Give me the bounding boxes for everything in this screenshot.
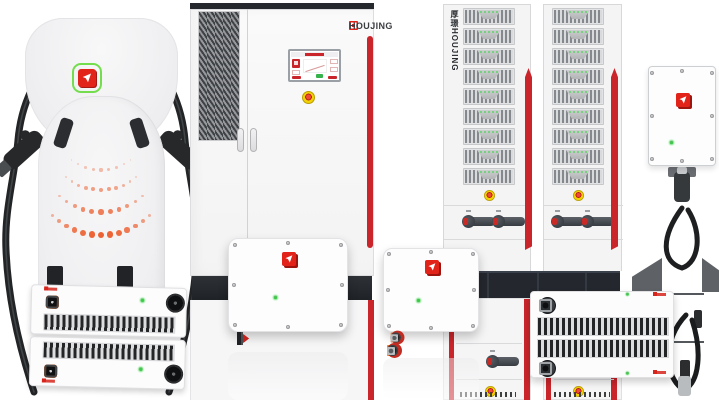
module-led: [577, 51, 579, 53]
module-led: [569, 31, 571, 33]
rotary-switch: [492, 215, 525, 228]
module-led: [484, 171, 486, 173]
charger-dot: [57, 219, 61, 223]
module-led: [573, 91, 575, 93]
black-connector: [46, 295, 59, 308]
charger-dot: [107, 231, 113, 237]
brand-logo-icon: [282, 252, 296, 266]
charger-dot: [80, 230, 86, 236]
module-led: [585, 11, 587, 13]
wallbox-front-view: [383, 248, 479, 332]
module-led: [496, 171, 498, 173]
module-led: [496, 31, 498, 33]
brand-logo-icon: [676, 93, 690, 107]
module-led: [484, 11, 486, 13]
screw: [387, 252, 391, 256]
rectifier-module-stack: [29, 284, 187, 392]
module-led: [496, 11, 498, 13]
power-module-slot: [552, 168, 604, 185]
screw: [339, 323, 343, 327]
charger-dot: [133, 224, 138, 229]
red-accent-stripe: [367, 36, 373, 248]
emergency-stop-button: [302, 91, 315, 104]
charger-dot: [125, 204, 129, 208]
module-rack-right: [543, 4, 622, 271]
module-led: [492, 131, 494, 133]
module-led: [569, 131, 571, 133]
module-led: [585, 151, 587, 153]
screw: [429, 250, 433, 254]
rotary-switch: [462, 215, 495, 228]
module-led: [492, 71, 494, 73]
screw: [680, 69, 684, 73]
module-led: [488, 51, 490, 53]
power-module-slot: [552, 68, 604, 85]
socket-connector: [539, 299, 552, 312]
status-led: [417, 299, 420, 302]
module-led: [577, 111, 579, 113]
module-led: [480, 11, 482, 13]
module-led: [585, 31, 587, 33]
hmi-button: [292, 76, 301, 79]
charger-dot: [92, 168, 95, 171]
module-led: [573, 151, 575, 153]
status-led: [139, 368, 142, 371]
charger-dot: [65, 200, 68, 203]
status-led: [670, 141, 673, 144]
screw: [232, 283, 236, 287]
power-module-slot: [552, 128, 604, 145]
power-module-slot: [552, 48, 604, 65]
charger-dot: [134, 200, 137, 203]
vent-grille: [537, 317, 669, 336]
module-led: [581, 71, 583, 73]
charger-dot: [51, 214, 54, 217]
module-led: [573, 51, 575, 53]
door-seam: [247, 9, 248, 276]
module-led: [585, 131, 587, 133]
module-led: [581, 111, 583, 113]
screw: [680, 159, 684, 163]
module-led: [480, 151, 482, 153]
module-led: [480, 131, 482, 133]
brand-wordmark: HOUJING: [349, 21, 358, 30]
screw: [233, 243, 237, 247]
screw: [286, 325, 290, 329]
charger-dot: [141, 195, 144, 198]
rotary-switch: [581, 215, 614, 228]
power-module-slot: [552, 108, 604, 125]
module-led: [496, 71, 498, 73]
charger-dot: [107, 187, 111, 191]
module-led: [569, 71, 571, 73]
charger-dot: [73, 204, 77, 208]
power-module-slot: [463, 148, 515, 165]
reflection: [228, 352, 348, 400]
module-led: [573, 171, 575, 173]
rotary-switch: [486, 355, 519, 368]
door-handle-left: [237, 128, 244, 152]
hmi-tile: [330, 59, 338, 64]
screw: [472, 288, 476, 292]
module-led: [585, 71, 587, 73]
screw: [339, 243, 343, 247]
screw: [286, 241, 290, 245]
charger-dot: [71, 159, 72, 160]
charger-dot: [129, 180, 132, 183]
charger-dot: [77, 163, 79, 165]
screw: [710, 114, 714, 118]
power-module-slot: [463, 8, 515, 25]
socket-connector: [539, 362, 552, 375]
bottom-connectors: [387, 343, 479, 358]
module-led: [585, 111, 587, 113]
red-accent-stripe: [368, 300, 374, 400]
charger-dot: [141, 219, 145, 223]
module-led: [480, 91, 482, 93]
status-led: [274, 296, 277, 299]
module-led: [496, 51, 498, 53]
brand-wordmark-text: HOUJING: [349, 21, 393, 31]
hmi-logo-block: [292, 59, 300, 68]
module-led: [573, 71, 575, 73]
module-led: [484, 91, 486, 93]
power-module-slot: [463, 48, 515, 65]
charger-dot: [123, 163, 125, 165]
power-distribution-module: [530, 291, 674, 378]
charger-dot: [108, 209, 113, 214]
module-led: [496, 151, 498, 153]
screw: [710, 71, 714, 75]
power-module-slot: [552, 8, 604, 25]
module-led: [585, 91, 587, 93]
rectifier-module: [29, 336, 186, 390]
module-led: [569, 151, 571, 153]
module-led: [492, 51, 494, 53]
status-led: [140, 299, 143, 302]
module-led: [480, 31, 482, 33]
brand-logo-icon: [425, 260, 439, 274]
screw: [233, 323, 237, 327]
charger-dot: [81, 207, 86, 212]
module-led: [569, 111, 571, 113]
module-led: [585, 51, 587, 53]
power-module-slot: [463, 128, 515, 145]
module-led: [488, 151, 490, 153]
module-led: [569, 91, 571, 93]
module-led: [484, 151, 486, 153]
power-module-slot: [463, 88, 515, 105]
module-led: [492, 151, 494, 153]
module-led: [484, 51, 486, 53]
charger-dot: [64, 224, 69, 229]
module-led: [573, 11, 575, 13]
wall-mounted-charger: [648, 66, 716, 166]
power-module-slot: [552, 88, 604, 105]
metal-fitting: [391, 334, 398, 341]
module-led: [581, 131, 583, 133]
charger-dot: [98, 209, 103, 214]
rotary-switch: [551, 215, 584, 228]
module-led: [480, 111, 482, 113]
vent-grille: [537, 339, 669, 358]
power-module-slot: [463, 108, 515, 125]
module-led: [581, 171, 583, 173]
module-led: [488, 91, 490, 93]
screw: [340, 283, 344, 287]
charger-dot: [89, 209, 94, 214]
module-rack-left: 厚璟HOUJING: [443, 4, 531, 271]
door-handle-right: [250, 128, 257, 152]
module-led: [492, 91, 494, 93]
emergency-stop-button: [484, 190, 495, 201]
screw: [650, 157, 654, 161]
red-accent-stripe: [611, 68, 618, 250]
module-led: [480, 171, 482, 173]
metal-fitting: [387, 347, 395, 355]
charger-dot: [115, 166, 118, 169]
charger-dot: [58, 195, 61, 198]
charger-dot: [99, 188, 103, 192]
panel-seam: [554, 379, 614, 380]
power-module-slot: [552, 148, 604, 165]
black-terminal: [237, 332, 243, 345]
charger-dot: [89, 231, 95, 237]
module-led: [480, 71, 482, 73]
module-led: [569, 171, 571, 173]
panel-seam: [444, 205, 532, 206]
charger-dot: [124, 227, 129, 232]
ventilation-grille: [198, 11, 240, 141]
vent-dashes: [554, 392, 610, 397]
module-led: [581, 51, 583, 53]
module-led: [492, 171, 494, 173]
module-led: [488, 131, 490, 133]
module-led: [581, 11, 583, 13]
status-led: [626, 372, 628, 374]
module-led: [569, 51, 571, 53]
screw: [471, 252, 475, 256]
hmi-chart: [303, 59, 327, 73]
screw: [387, 324, 391, 328]
module-led: [488, 31, 490, 33]
brand-vertical-wordmark: 厚璟HOUJING: [446, 10, 460, 90]
screw: [471, 324, 475, 328]
module-led: [569, 11, 571, 13]
module-led: [573, 131, 575, 133]
module-led: [585, 171, 587, 173]
bottom-connectors: [237, 330, 341, 347]
module-led: [577, 171, 579, 173]
charger-dot: [84, 186, 88, 190]
screw: [386, 288, 390, 292]
hmi-header: [291, 52, 338, 57]
module-led: [577, 91, 579, 93]
module-led: [488, 171, 490, 173]
hmi-tile: [292, 70, 300, 75]
red-accent-stripe: [525, 68, 532, 250]
screw: [429, 326, 433, 330]
module-led: [577, 151, 579, 153]
module-led: [480, 51, 482, 53]
module-led: [496, 111, 498, 113]
module-led: [581, 91, 583, 93]
hmi-status-green: [316, 74, 323, 78]
charger-dot: [135, 176, 137, 178]
charger-dot: [148, 214, 151, 217]
module-led: [492, 111, 494, 113]
charger-dot: [98, 232, 104, 238]
module-led: [577, 31, 579, 33]
charger-dot: [71, 180, 74, 183]
screw: [710, 157, 714, 161]
module-led: [573, 111, 575, 113]
reflection: [383, 358, 479, 400]
module-led: [488, 111, 490, 113]
charger-dot: [122, 184, 125, 187]
charger-dot: [65, 176, 67, 178]
power-module-slot: [463, 168, 515, 185]
module-led: [573, 31, 575, 33]
screw: [650, 114, 654, 118]
module-bay: [552, 8, 604, 190]
charger-dot: [116, 230, 122, 236]
module-led: [577, 71, 579, 73]
power-module-slot: [463, 68, 515, 85]
module-led: [484, 131, 486, 133]
charger-dot: [72, 227, 77, 232]
module-led: [488, 11, 490, 13]
module-led: [484, 111, 486, 113]
charger-dot: [107, 168, 110, 171]
module-led: [496, 91, 498, 93]
status-led: [626, 293, 628, 295]
vent-grille: [42, 341, 174, 361]
module-led: [484, 31, 486, 33]
module-led: [581, 151, 583, 153]
rectifier-module: [30, 284, 187, 338]
emergency-stop-button: [573, 190, 584, 201]
module-led: [492, 31, 494, 33]
module-led: [577, 11, 579, 13]
module-bay: [463, 8, 515, 190]
power-module-slot: [463, 28, 515, 45]
charger-dot: [130, 159, 131, 160]
charger-dot: [91, 187, 95, 191]
hmi-tile: [330, 67, 338, 72]
charger-dot: [117, 207, 122, 212]
vent-grille: [43, 313, 175, 333]
power-module-slot: [552, 28, 604, 45]
module-led: [496, 131, 498, 133]
panel-seam: [444, 239, 532, 240]
charger-dot: [99, 168, 102, 171]
screw: [650, 71, 654, 75]
hmi-button: [328, 76, 337, 79]
module-led: [488, 71, 490, 73]
product-showcase: HOUJING 厚璟HOUJING: [0, 0, 719, 400]
hmi-display: [288, 49, 341, 82]
black-connector: [44, 364, 57, 377]
wallbox-front-view: [228, 238, 348, 332]
charger-dot: [77, 184, 80, 187]
charger-dot: [84, 166, 87, 169]
cooling-fan: [164, 364, 183, 383]
cooling-fan: [166, 293, 185, 312]
charger-dot: [114, 186, 118, 190]
module-led: [577, 131, 579, 133]
module-led: [484, 71, 486, 73]
module-led: [492, 11, 494, 13]
module-led: [581, 31, 583, 33]
